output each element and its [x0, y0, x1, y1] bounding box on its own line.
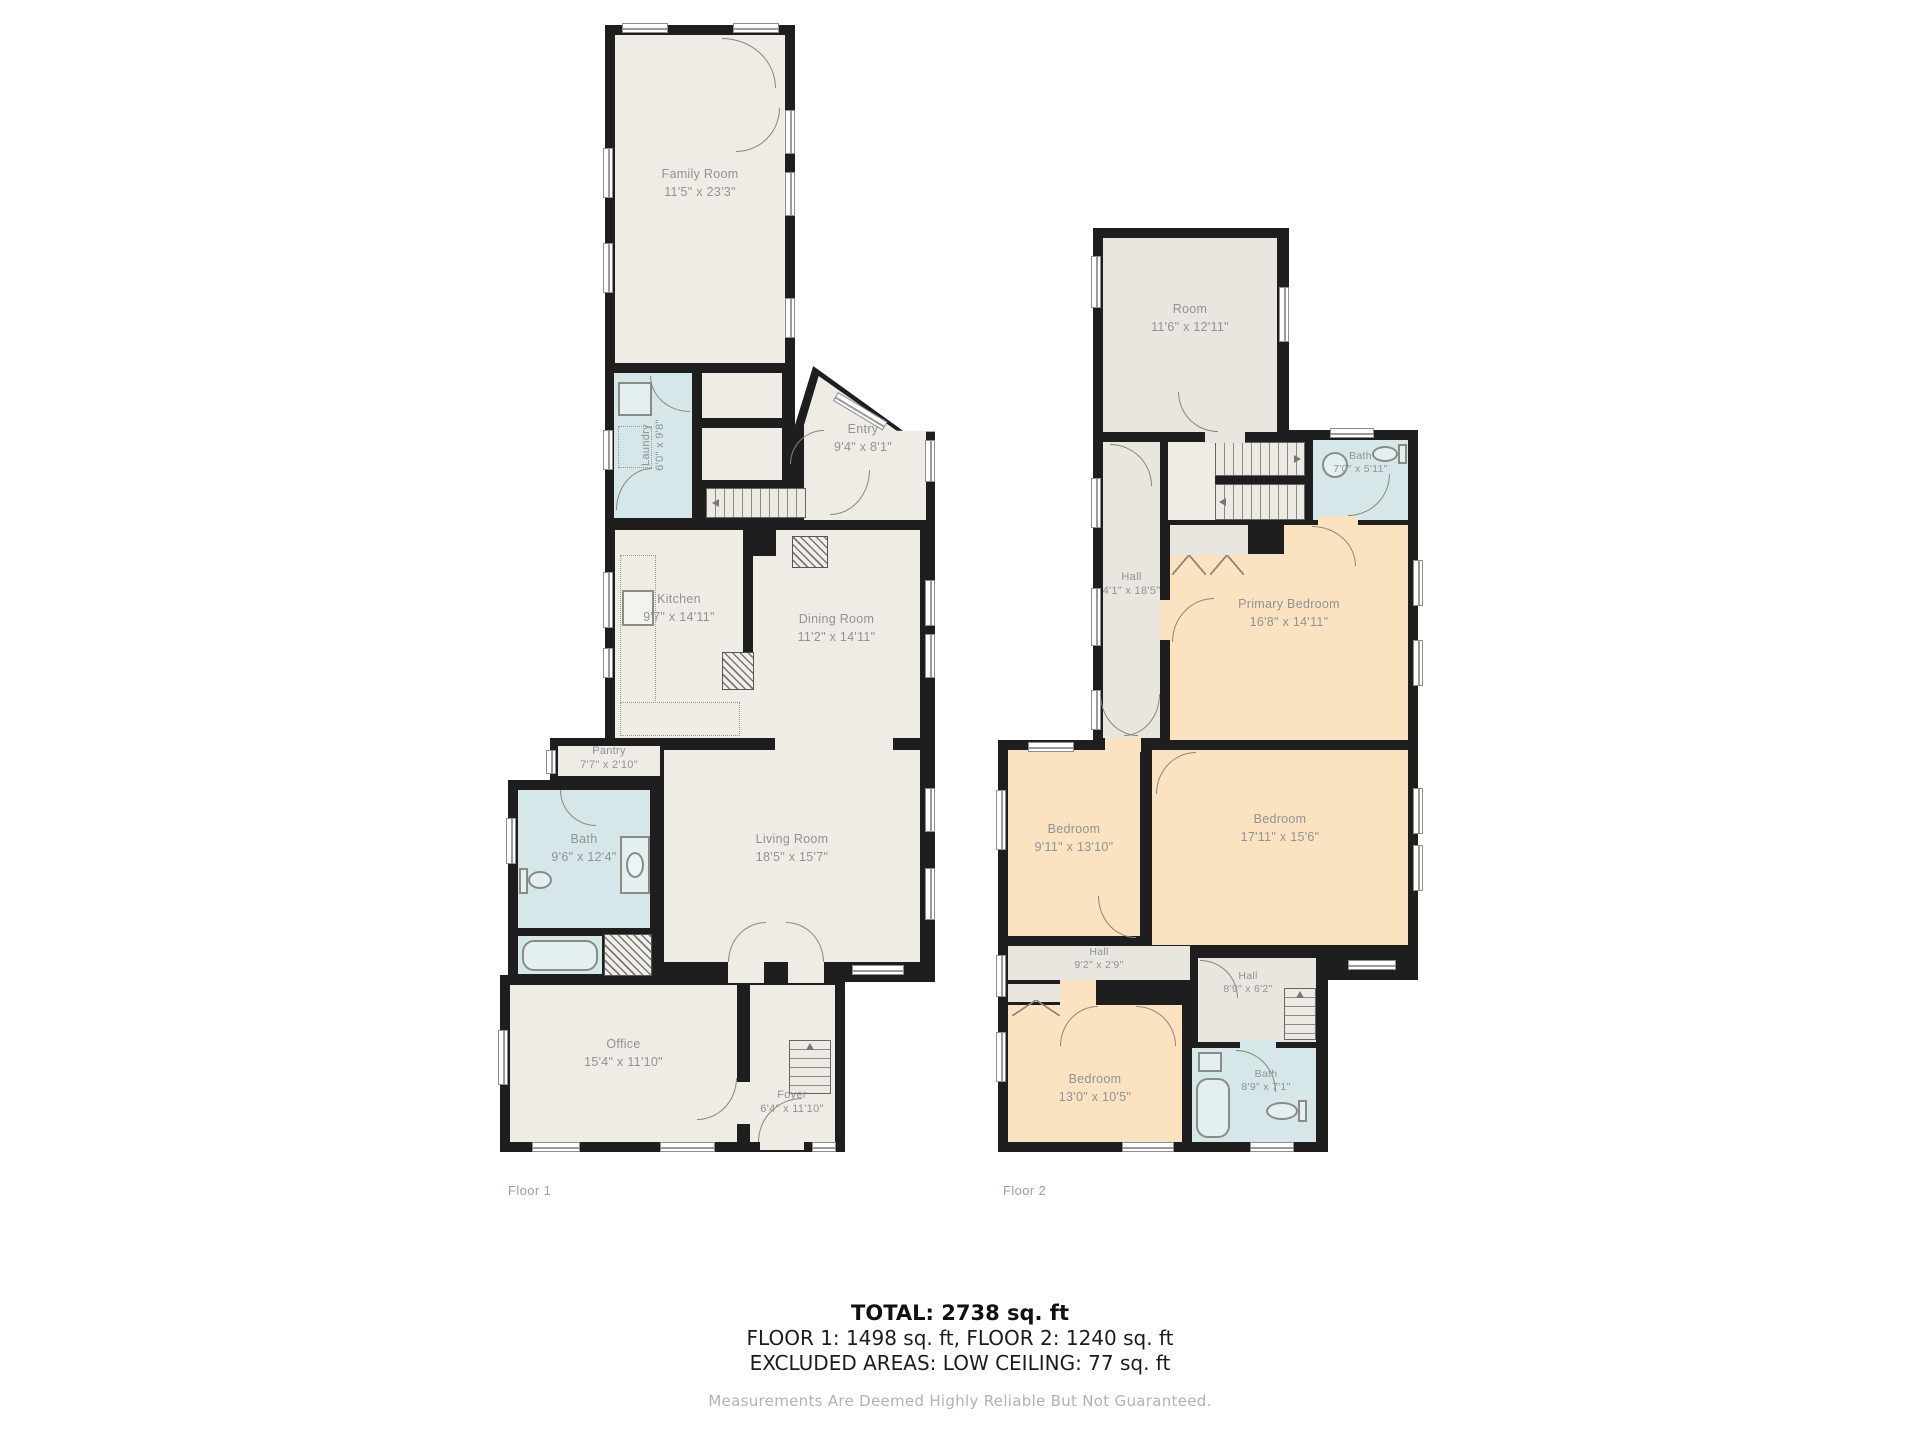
window [660, 1142, 715, 1152]
doorway-gap [1105, 738, 1141, 752]
stair-divider [1215, 476, 1305, 484]
room-hall-small [1008, 946, 1190, 980]
doorway-gap [1160, 600, 1171, 640]
bathtub-icon [522, 940, 598, 971]
chase-hatch [604, 934, 652, 976]
window [1091, 588, 1101, 646]
floor1-caption: Floor 1 [508, 1183, 551, 1198]
window [1330, 428, 1374, 438]
stairs-arrow-icon [1294, 455, 1301, 463]
floor-areas-text: FLOOR 1: 1498 sq. ft, FLOOR 2: 1240 sq. … [747, 1326, 1174, 1351]
window [1348, 960, 1396, 970]
room-pantry [558, 746, 660, 776]
stairs-arrow-icon [806, 1043, 814, 1050]
window [1091, 478, 1101, 528]
toilet-tank-icon [1398, 444, 1407, 464]
doorway-gap [737, 1082, 750, 1124]
window [785, 298, 795, 338]
window [1279, 287, 1289, 342]
bifold-door-icon [1012, 1000, 1060, 1016]
window [1091, 690, 1101, 730]
window [812, 1142, 836, 1152]
bifold-door-icon [1210, 555, 1244, 575]
window [603, 148, 613, 198]
stove-hatch [722, 652, 754, 690]
toilet-icon [528, 871, 552, 889]
stairs [1215, 484, 1305, 520]
window [785, 110, 795, 154]
window [785, 172, 795, 216]
closet [702, 428, 782, 480]
window [622, 23, 668, 33]
window [498, 1030, 508, 1085]
window [925, 634, 935, 678]
doorway-gap [1060, 980, 1096, 1006]
window [1413, 845, 1423, 891]
dryer-icon [618, 426, 652, 468]
window [1250, 1142, 1294, 1152]
window [852, 965, 904, 975]
window [603, 430, 613, 470]
opening [775, 736, 893, 752]
window [546, 750, 556, 774]
doorway-gap [728, 962, 764, 983]
window [1028, 742, 1074, 752]
stairs [706, 488, 806, 518]
window [996, 955, 1006, 997]
doorway-gap [1240, 1040, 1276, 1049]
total-area-text: TOTAL: 2738 sq. ft [851, 1300, 1069, 1326]
window [925, 788, 935, 832]
doorway-gap [788, 962, 824, 983]
window [1413, 788, 1423, 834]
toilet-icon [1266, 1102, 1298, 1120]
toilet-tank-icon [519, 868, 528, 894]
bathtub-icon [1196, 1078, 1230, 1138]
window [506, 818, 516, 864]
window [925, 440, 935, 482]
opening [740, 690, 756, 738]
summary-block: TOTAL: 2738 sq. ft FLOOR 1: 1498 sq. ft,… [0, 1300, 1920, 1410]
stairs-arrow-icon [712, 499, 719, 507]
window [1413, 640, 1423, 686]
window [925, 868, 935, 920]
fireplace-hatch [792, 536, 828, 568]
disclaimer-text: Measurements Are Deemed Highly Reliable … [708, 1392, 1211, 1410]
window [1091, 256, 1101, 308]
floor2-caption: Floor 2 [1003, 1183, 1046, 1198]
window [733, 23, 779, 33]
chimney-block [752, 526, 776, 556]
primary-closet [1170, 525, 1248, 555]
room-dining [753, 530, 920, 738]
sink-icon [1322, 452, 1348, 478]
chimney-block [1248, 518, 1284, 554]
sink-icon [1198, 1052, 1222, 1072]
window [996, 790, 1006, 850]
doorway-gap [1205, 432, 1245, 443]
window [603, 572, 613, 628]
doorway-gap [1318, 516, 1358, 526]
washer-icon [618, 382, 652, 416]
floorplan-canvas: Family Room 11'5" x 23'3" Laundry 6'0" x… [0, 0, 1920, 1440]
window [1122, 1142, 1174, 1152]
stair-landing [1168, 442, 1215, 520]
excluded-areas-text: EXCLUDED AREAS: LOW CEILING: 77 sq. ft [750, 1351, 1171, 1376]
window [996, 1032, 1006, 1082]
toilet-tank-icon [1298, 1100, 1307, 1122]
kitchen-counter [620, 555, 656, 703]
window [603, 243, 613, 293]
closet [702, 373, 782, 418]
stairs-arrow-icon [1296, 991, 1304, 998]
window [603, 648, 613, 678]
stairs-arrow-icon [1219, 498, 1226, 506]
bifold-door-icon [1172, 555, 1206, 575]
toilet-icon [1372, 446, 1398, 462]
window [1413, 560, 1423, 606]
stairs [1215, 442, 1305, 476]
window [925, 580, 935, 626]
kitchen-sink-icon [622, 590, 654, 626]
sink-icon [626, 852, 644, 878]
window [532, 1142, 580, 1152]
kitchen-counter [620, 702, 740, 736]
